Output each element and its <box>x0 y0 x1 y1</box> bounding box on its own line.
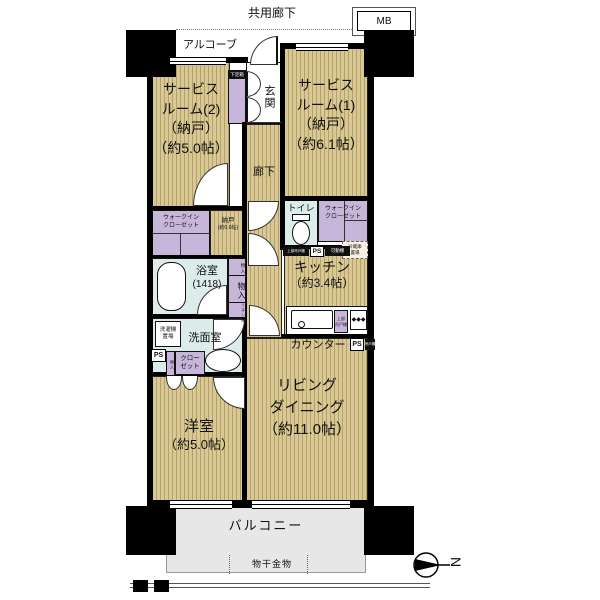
closet-left-l1: クロー <box>180 355 200 363</box>
wic-left-l2: クローゼット <box>152 223 210 231</box>
kitchen-upper-cabinet: 上部 吊戸棚 <box>334 310 348 333</box>
ps-toilet-label: PS <box>313 248 322 255</box>
nando-l2: (約0.6帖) <box>210 225 246 232</box>
toilet-upper-cabinet-label: 上部吊戸棚 <box>283 247 309 256</box>
corridor-label: 廊下 <box>248 165 280 179</box>
ps-counter: PS <box>350 338 364 351</box>
stove: ◆◆◆ <box>350 310 367 330</box>
window-sr1-top <box>296 43 348 51</box>
toilet-tank <box>292 214 310 221</box>
laundry-hardware-label: 物干金物 <box>226 559 318 571</box>
closet-left-l2: ゼット <box>180 363 200 371</box>
window-sr2-top <box>170 57 226 65</box>
wic-left-shelf-line <box>152 233 210 234</box>
pillar-top-right <box>364 30 414 77</box>
ps-counter-label: PS <box>352 341 361 348</box>
balcony-label: バルコニー <box>166 518 366 535</box>
western-l2: （約5.0帖） <box>152 437 246 454</box>
bathroom-l1: 浴室 <box>186 264 228 278</box>
sr1-l4: （約6.1帖） <box>282 135 370 155</box>
ground-block-2 <box>154 580 169 592</box>
counter-label: カウンター <box>284 338 352 352</box>
laundry-tick-right <box>307 555 308 574</box>
sr2-l4: （約5.0帖） <box>150 139 232 159</box>
stove-burner-icon: ◆ <box>361 317 366 323</box>
ps-left: PS <box>151 349 166 362</box>
window-western-bottom <box>170 500 232 509</box>
ld-l2: ダイニング <box>246 397 368 419</box>
wic-left-l1: ウォークイン <box>152 215 210 223</box>
ld-l3: （約11.0帖） <box>246 419 368 441</box>
entrance-step-line <box>246 122 282 123</box>
storage-linen: リネン庫 <box>228 302 246 318</box>
wic-right-label: ウォークイン クローゼット <box>320 206 366 222</box>
bathroom-label: 浴室 (1418) <box>186 264 228 291</box>
bathroom-l2: (1418) <box>186 278 228 291</box>
western-room-label: 洋室 （約5.0帖） <box>152 417 246 453</box>
sr1-l2: ルーム(1) <box>282 96 370 116</box>
kitchen-faucet <box>298 321 305 328</box>
pillar-top-left <box>126 30 176 77</box>
kitchen-label: キッチン （約3.4帖） <box>284 258 360 292</box>
ps-toilet: PS <box>310 246 324 257</box>
sr2-l2: ルーム(2) <box>150 100 232 120</box>
bathtub <box>157 262 186 311</box>
sr1-l3: （納戸） <box>282 115 370 135</box>
storage-monoire-side: 物入 <box>166 351 175 376</box>
washer-space-l1: 洗濯機 <box>160 327 177 334</box>
toilet-bowl <box>292 221 310 245</box>
ps-left-label: PS <box>154 352 163 359</box>
living-dining-label: リビング ダイニング （約11.0帖） <box>246 375 368 440</box>
alcove-label: アルコーブ <box>178 38 242 52</box>
shoe-cabinet-label: 下足箱 <box>228 70 246 79</box>
north-letter: N <box>447 554 465 570</box>
counter-end-cabinet-label: 吊戸棚 <box>365 339 375 350</box>
wall-sr2-bottom <box>150 206 243 210</box>
wic-left-shelf-line2 <box>180 233 181 256</box>
north-arrow <box>404 550 450 580</box>
floor-plan: 共用廊下 MB アルコーブ 下足箱 物入 物入 リネン庫 洗濯機 置場 <box>0 0 600 600</box>
movable-shelf-label: 可動棚 <box>325 246 350 256</box>
meter-box-label: MB <box>377 16 392 27</box>
washroom-sink <box>205 349 241 372</box>
front-door <box>250 36 278 65</box>
site-boundary-dotted-line <box>176 29 356 30</box>
ground-line <box>130 583 430 588</box>
sr1-l1: サービス <box>282 76 370 96</box>
ground-block-1 <box>133 580 148 592</box>
service-room-2-label: サービス ルーム(2) （納戸） （約5.0帖） <box>150 80 232 158</box>
ld-l1: リビング <box>246 375 368 397</box>
laundry-tick-left <box>229 555 230 574</box>
kitchen-upper-cabinet-l2: 吊戸棚 <box>335 322 347 327</box>
meter-box-inner: MB <box>357 11 411 31</box>
entrance-label: 玄関 <box>262 76 276 118</box>
window-living-bottom <box>252 500 350 509</box>
closet-left: クロー ゼット <box>175 351 205 375</box>
sr2-l3: （納戸） <box>150 119 232 139</box>
kitchen-l2: （約3.4帖） <box>284 276 360 292</box>
nando-small-label: 納戸 (約0.6帖) <box>210 217 246 232</box>
toilet-label: トイレ <box>284 203 318 215</box>
kitchen-l1: キッチン <box>284 258 360 276</box>
storage-monoire-mid: 物入 <box>228 275 246 304</box>
wic-right-l2: クローゼット <box>320 214 366 222</box>
wic-left-label: ウォークイン クローゼット <box>152 215 210 231</box>
wall-sr1-bottom <box>280 196 374 201</box>
western-l1: 洋室 <box>152 417 246 437</box>
service-room-1-label: サービス ルーム(1) （納戸） （約6.1帖） <box>282 76 370 154</box>
washroom-label: 洗面室 <box>177 331 233 345</box>
kitchen-sink <box>291 310 333 329</box>
sr2-l1: サービス <box>150 80 232 100</box>
wic-right-l1: ウォークイン <box>320 206 366 214</box>
washer-space-l2: 置場 <box>162 334 173 341</box>
common-corridor-label: 共用廊下 <box>220 6 324 22</box>
pillar-bottom-right <box>364 506 414 555</box>
fridge-l2: 置場 <box>351 250 360 256</box>
